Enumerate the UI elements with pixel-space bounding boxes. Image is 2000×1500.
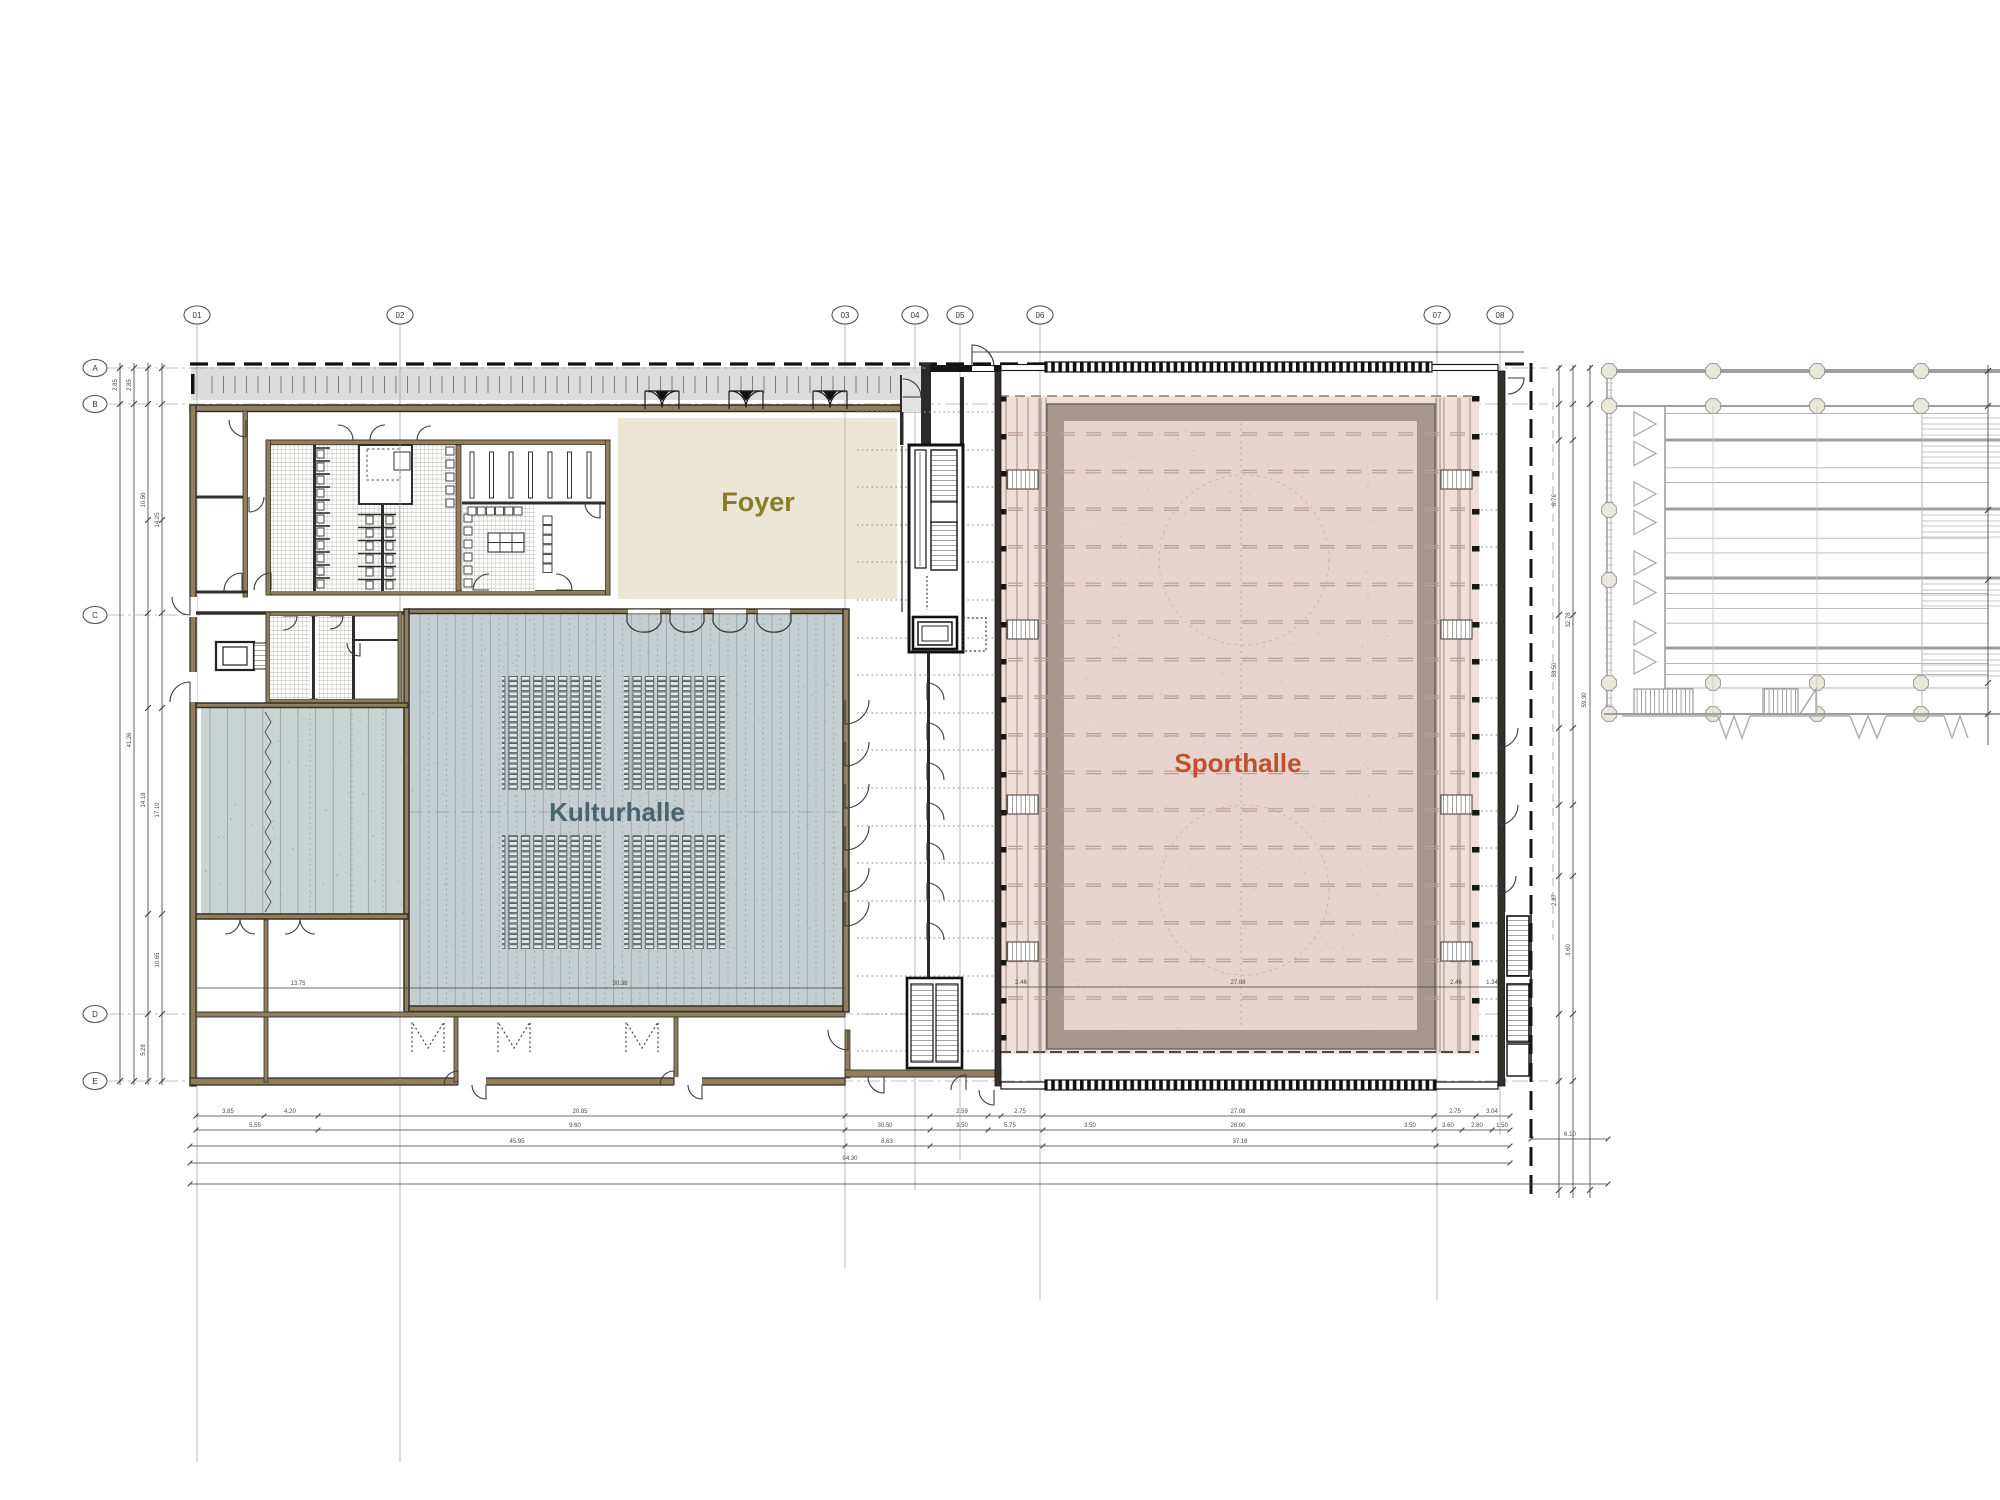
svg-text:1.50: 1.50 [1496,1123,1508,1129]
svg-text:Foyer: Foyer [721,487,795,517]
svg-text:2.46: 2.46 [1015,980,1027,986]
svg-text:45.95: 45.95 [509,1139,525,1145]
svg-text:06: 06 [1036,311,1045,320]
svg-text:13.75: 13.75 [290,981,306,987]
svg-text:Sporthalle: Sporthalle [1174,748,1301,778]
svg-text:20.85: 20.85 [572,1109,588,1115]
svg-text:14.25: 14.25 [155,512,161,528]
svg-text:26.00: 26.00 [1230,1123,1246,1129]
svg-text:3.50: 3.50 [1404,1123,1416,1129]
svg-text:3.50: 3.50 [956,1123,968,1129]
svg-text:10.65: 10.65 [155,952,161,968]
svg-text:14.18: 14.18 [141,792,147,808]
svg-text:6.10: 6.10 [1564,1132,1576,1138]
svg-text:27.08: 27.08 [1230,980,1246,986]
svg-text:30.38: 30.38 [612,981,628,987]
svg-text:03: 03 [841,311,850,320]
svg-text:53.50: 53.50 [1552,662,1558,678]
svg-text:2.59: 2.59 [956,1109,968,1115]
svg-text:02: 02 [396,311,405,320]
svg-text:1.34: 1.34 [1486,980,1498,986]
svg-text:10.56: 10.56 [141,492,147,508]
svg-text:5.55: 5.55 [249,1123,261,1129]
svg-text:2.87: 2.87 [1552,894,1558,906]
svg-text:37.16: 37.16 [1232,1139,1248,1145]
svg-text:5.75: 5.75 [1004,1123,1016,1129]
svg-text:Kulturhalle: Kulturhalle [549,797,685,827]
svg-text:3.60: 3.60 [1566,944,1572,956]
svg-text:A: A [92,364,98,373]
svg-text:E: E [92,1077,97,1086]
svg-text:C: C [92,611,98,620]
svg-text:6.76: 6.76 [1552,494,1558,506]
svg-text:2.46: 2.46 [1450,980,1462,986]
svg-text:9.60: 9.60 [569,1123,581,1129]
svg-text:07: 07 [1433,311,1442,320]
svg-text:08: 08 [1496,311,1505,320]
svg-text:8.63: 8.63 [881,1139,893,1145]
svg-text:2.75: 2.75 [1014,1109,1026,1115]
svg-text:32.78: 32.78 [1566,612,1572,628]
svg-text:2.85: 2.85 [127,379,133,391]
svg-text:30.50: 30.50 [877,1123,893,1129]
svg-text:94.30: 94.30 [842,1156,858,1162]
svg-text:2.85: 2.85 [113,379,119,391]
svg-text:27.08: 27.08 [1230,1109,1246,1115]
svg-text:4.20: 4.20 [284,1109,296,1115]
svg-text:05: 05 [956,311,965,320]
svg-text:01: 01 [193,311,202,320]
svg-text:B: B [92,400,97,409]
svg-text:59.30: 59.30 [1582,692,1588,708]
svg-text:04: 04 [911,311,920,320]
svg-text:3.50: 3.50 [1084,1123,1096,1129]
svg-text:3.04: 3.04 [1486,1109,1498,1115]
svg-text:2.80: 2.80 [1471,1123,1483,1129]
svg-text:D: D [92,1010,98,1019]
svg-text:5.28: 5.28 [141,1044,147,1056]
svg-text:3.85: 3.85 [222,1109,234,1115]
svg-text:41.26: 41.26 [127,732,133,748]
svg-text:2.75: 2.75 [1449,1109,1461,1115]
svg-text:3.60: 3.60 [1442,1123,1454,1129]
svg-text:17.10: 17.10 [155,802,161,818]
